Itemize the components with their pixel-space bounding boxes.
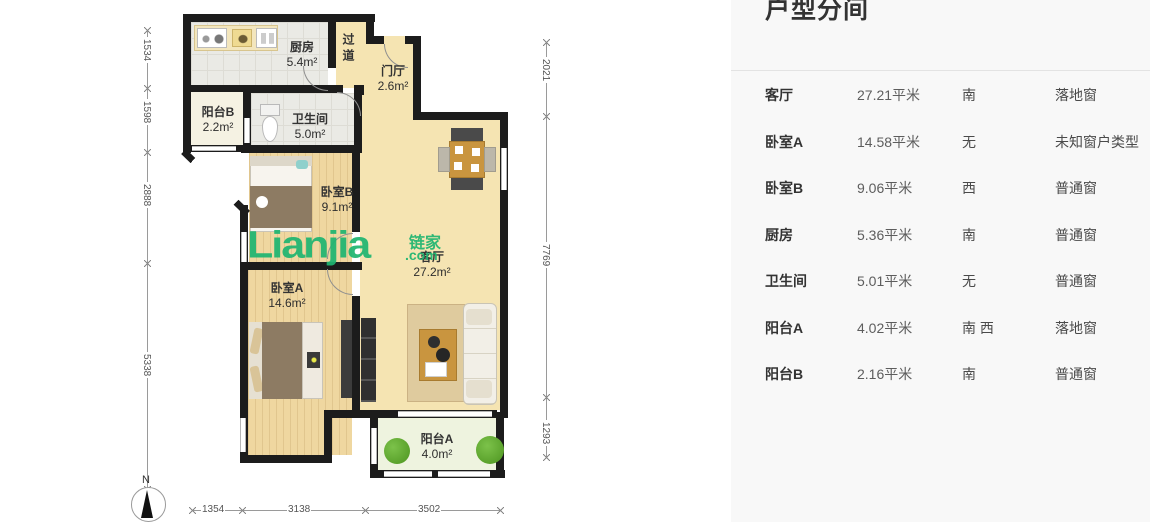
dim-tick bbox=[144, 27, 151, 34]
dim-tick bbox=[497, 507, 504, 514]
dining-chair bbox=[484, 147, 496, 172]
tv-cabinet bbox=[361, 318, 376, 402]
room-window-type: 普通窗 bbox=[1055, 225, 1097, 245]
toilet bbox=[260, 104, 280, 116]
stove bbox=[232, 29, 252, 47]
room-window-type: 普通窗 bbox=[1055, 271, 1097, 291]
window-slider bbox=[398, 411, 492, 417]
dining-bench bbox=[451, 178, 483, 190]
room-orientation: 西 bbox=[962, 178, 976, 198]
room-area: 5.01平米 bbox=[857, 271, 912, 291]
table-row: 卫生间 5.01平米 无 普通窗 bbox=[731, 258, 1150, 305]
bed-a-blanket bbox=[262, 322, 302, 399]
room-window-type: 落地窗 bbox=[1055, 85, 1097, 105]
room-orientation: 南 西 bbox=[962, 318, 994, 338]
dim-tick bbox=[543, 454, 550, 461]
room-label-entry: 门厅2.6m² bbox=[364, 64, 422, 94]
table-row: 卧室A 14.58平米 无 未知窗户类型 bbox=[731, 119, 1150, 166]
dining-chair bbox=[438, 147, 450, 172]
room-label-bedroom-b: 卧室B9.1m² bbox=[308, 185, 366, 215]
table-row: 阳台A 4.02平米 南 西 落地窗 bbox=[731, 305, 1150, 352]
room-table: 客厅 27.21平米 南 落地窗 卧室A 14.58平米 无 未知窗户类型 卧室… bbox=[731, 72, 1150, 398]
wall bbox=[354, 85, 362, 153]
wall bbox=[249, 85, 343, 93]
sofa-pillow bbox=[466, 380, 492, 398]
teapot bbox=[436, 348, 450, 362]
dining-table bbox=[449, 141, 485, 178]
lianjia-watermark-com: .com bbox=[405, 247, 438, 263]
room-name: 卧室A bbox=[765, 132, 803, 152]
wall bbox=[413, 112, 508, 120]
room-name: 客厅 bbox=[765, 85, 793, 105]
dim-label: 7769 bbox=[539, 242, 551, 268]
compass-needle-icon bbox=[141, 490, 153, 518]
dim-label: 1293 bbox=[539, 420, 551, 446]
window bbox=[438, 471, 490, 477]
room-name: 卧室B bbox=[765, 178, 803, 198]
dim-tick bbox=[543, 113, 550, 120]
dim-label: 2888 bbox=[140, 182, 152, 208]
table-row: 卧室B 9.06平米 西 普通窗 bbox=[731, 165, 1150, 212]
room-orientation: 南 bbox=[962, 225, 976, 245]
divider bbox=[731, 70, 1150, 71]
wall bbox=[241, 145, 362, 153]
wall bbox=[240, 455, 332, 463]
wall bbox=[352, 296, 360, 418]
dim-label: 2021 bbox=[539, 57, 551, 83]
lianjia-watermark-logo: Lianjia bbox=[247, 224, 369, 267]
plant bbox=[384, 438, 410, 464]
room-name: 卫生间 bbox=[765, 271, 807, 291]
room-label-bathroom: 卫生间5.0m² bbox=[281, 112, 339, 142]
room-name: 厨房 bbox=[765, 225, 793, 245]
wall bbox=[405, 36, 421, 44]
room-breakdown-panel: 户型分间 客厅 27.21平米 南 落地窗 卧室A 14.58平米 无 未知窗户… bbox=[731, 0, 1150, 522]
room-area: 9.06平米 bbox=[857, 178, 912, 198]
room-label-balcony-a: 阳台A4.0m² bbox=[408, 432, 466, 462]
dim-tick bbox=[239, 507, 246, 514]
section-title: 户型分间 bbox=[765, 0, 869, 26]
window bbox=[240, 418, 246, 452]
dim-tick bbox=[144, 260, 151, 267]
wardrobe-tv bbox=[307, 352, 320, 368]
sofa-pillow bbox=[466, 309, 492, 325]
room-window-type: 未知窗户类型 bbox=[1055, 132, 1139, 152]
dim-tick bbox=[144, 85, 151, 92]
page: 厨房5.4m² 过道 门厅2.6m² 阳台B2.2m² 卫生间5.0m² 卧室B… bbox=[0, 0, 1150, 522]
magazine bbox=[425, 362, 447, 377]
bed-b-pillow bbox=[296, 160, 308, 169]
dim-label: 1354 bbox=[201, 503, 225, 517]
dining-bench bbox=[451, 128, 483, 141]
dim-tick bbox=[362, 507, 369, 514]
dim-label: 5338 bbox=[140, 352, 152, 378]
dim-label: 1534 bbox=[140, 37, 152, 63]
room-window-type: 普通窗 bbox=[1055, 178, 1097, 198]
dim-tick bbox=[543, 39, 550, 46]
room-name: 阳台A bbox=[765, 318, 803, 338]
room-name: 阳台B bbox=[765, 364, 803, 384]
washing-machine bbox=[197, 28, 227, 48]
dim-tick bbox=[543, 394, 550, 401]
room-area: 14.58平米 bbox=[857, 132, 920, 152]
wall bbox=[366, 14, 374, 44]
room-label-kitchen: 厨房5.4m² bbox=[273, 40, 331, 70]
bed-b-logo bbox=[256, 196, 268, 208]
table-row: 厨房 5.36平米 南 普通窗 bbox=[731, 212, 1150, 259]
room-window-type: 落地窗 bbox=[1055, 318, 1097, 338]
room-label-balcony-b: 阳台B2.2m² bbox=[189, 105, 247, 135]
teapot bbox=[428, 336, 440, 348]
room-orientation: 无 bbox=[962, 132, 976, 152]
room-area: 5.36平米 bbox=[857, 225, 912, 245]
room-label-bedroom-a: 卧室A14.6m² bbox=[258, 281, 316, 311]
dim-label: 3502 bbox=[417, 503, 441, 517]
table-row: 客厅 27.21平米 南 落地窗 bbox=[731, 72, 1150, 119]
compass-north-label: N bbox=[142, 474, 150, 486]
room-orientation: 南 bbox=[962, 364, 976, 384]
table-row: 阳台B 2.16平米 南 普通窗 bbox=[731, 351, 1150, 398]
dim-tick bbox=[144, 149, 151, 156]
room-window-type: 普通窗 bbox=[1055, 364, 1097, 384]
dim-label: 1598 bbox=[140, 99, 152, 125]
room-area: 2.16平米 bbox=[857, 364, 912, 384]
dim-tick bbox=[189, 507, 196, 514]
room-orientation: 南 bbox=[962, 85, 976, 105]
window bbox=[371, 428, 377, 464]
room-orientation: 无 bbox=[962, 271, 976, 291]
room-label-corridor: 过道 bbox=[340, 33, 357, 73]
plant bbox=[476, 436, 504, 464]
room-area: 27.21平米 bbox=[857, 85, 920, 105]
wall bbox=[183, 14, 375, 22]
window bbox=[192, 146, 236, 151]
dim-label: 3138 bbox=[287, 503, 311, 517]
window bbox=[501, 148, 507, 190]
room-area: 4.02平米 bbox=[857, 318, 912, 338]
floorplan-image[interactable]: 厨房5.4m² 过道 门厅2.6m² 阳台B2.2m² 卫生间5.0m² 卧室B… bbox=[0, 0, 700, 522]
window bbox=[384, 471, 432, 477]
tv-cabinet bbox=[341, 320, 352, 398]
